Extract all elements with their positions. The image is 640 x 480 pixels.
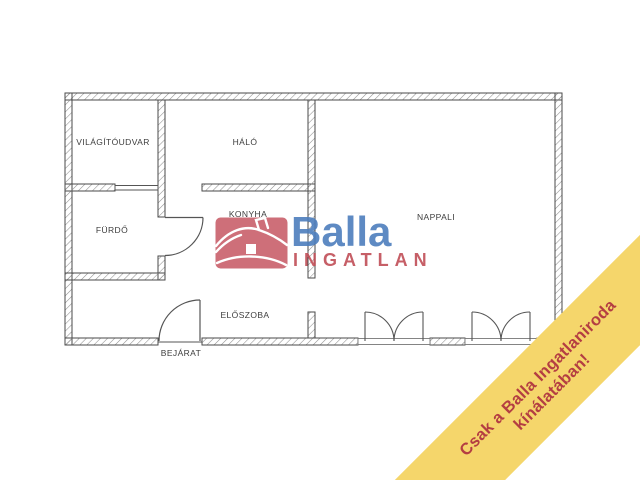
room-label-bejarat: BEJÁRAT bbox=[161, 348, 201, 358]
window-symbol bbox=[115, 186, 158, 191]
room-label-vilagitoudvar: VILÁGÍTÓUDVAR bbox=[76, 137, 150, 147]
bathroom-door-symbol bbox=[165, 218, 203, 256]
room-label-furdo: FÜRDŐ bbox=[96, 225, 128, 235]
balla-logo-watermark: Balla INGATLAN bbox=[215, 214, 445, 270]
entrance-door-symbol bbox=[158, 300, 202, 342]
room-label-eloszoba: ELŐSZOBA bbox=[220, 310, 269, 320]
room-label-halo: HÁLÓ bbox=[233, 137, 258, 147]
logo-house-icon bbox=[215, 217, 288, 269]
floorplan-canvas: VILÁGÍTÓUDVAR HÁLÓ FÜRDŐ KONYHA NAPPALI … bbox=[0, 0, 640, 480]
logo-brand-text: Balla bbox=[291, 211, 391, 253]
logo-subbrand-text: INGATLAN bbox=[293, 251, 433, 269]
french-door-2-symbol bbox=[465, 312, 537, 345]
french-door-1-symbol bbox=[358, 312, 430, 345]
